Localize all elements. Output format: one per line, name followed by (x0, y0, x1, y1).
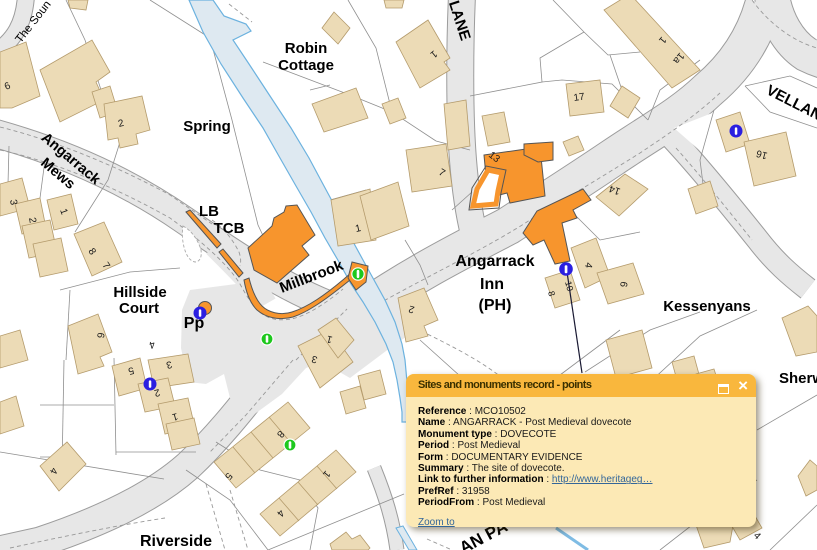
svg-text:LB: LB (199, 203, 219, 220)
svg-text:Cottage: Cottage (278, 57, 334, 74)
svg-text:Riverside: Riverside (140, 533, 212, 550)
svg-text:(PH): (PH) (479, 297, 512, 314)
svg-text:TCB: TCB (214, 220, 245, 237)
svg-text:Inn: Inn (480, 276, 504, 293)
svg-text:Kessenyans: Kessenyans (663, 298, 751, 315)
svg-text:Court: Court (119, 300, 159, 317)
svg-text:Spring: Spring (183, 118, 231, 135)
svg-text:17: 17 (573, 91, 586, 104)
svg-text:Hillside: Hillside (113, 284, 166, 301)
svg-text:Angarrack: Angarrack (455, 253, 534, 270)
svg-text:Sherwood: Sherwood (779, 370, 817, 387)
svg-text:Robin: Robin (285, 40, 328, 57)
